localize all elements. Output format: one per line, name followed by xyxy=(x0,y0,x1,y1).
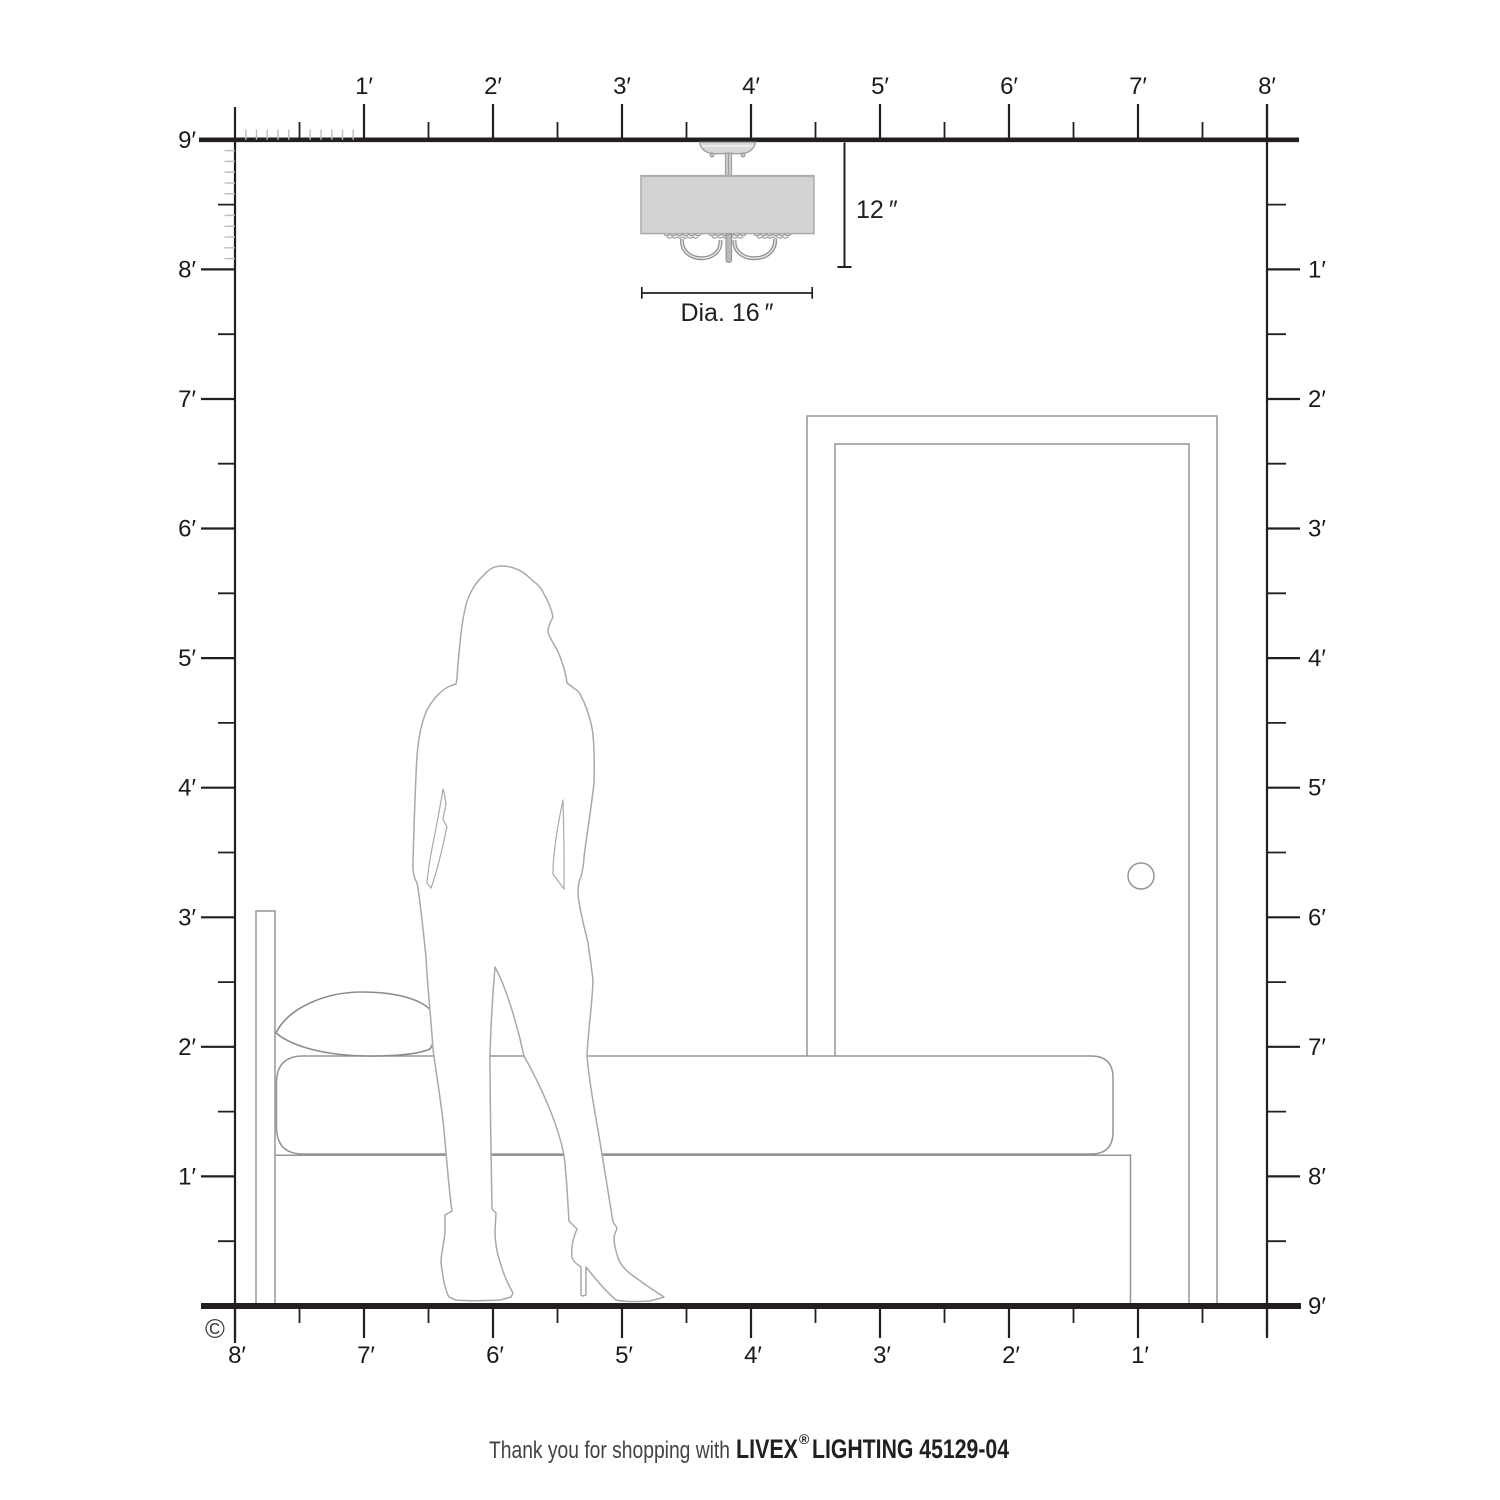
svg-text:3′: 3′ xyxy=(178,904,196,931)
svg-text:5′: 5′ xyxy=(871,73,889,100)
svg-text:8′: 8′ xyxy=(178,256,196,283)
svg-text:©: © xyxy=(205,1314,225,1344)
svg-text:6′: 6′ xyxy=(1000,73,1018,100)
svg-text:12 ″: 12 ″ xyxy=(856,196,898,224)
svg-text:4′: 4′ xyxy=(1308,645,1326,672)
svg-text:3′: 3′ xyxy=(1308,516,1326,543)
svg-text:2′: 2′ xyxy=(1308,386,1326,413)
svg-text:8′: 8′ xyxy=(1258,73,1276,100)
svg-text:4′: 4′ xyxy=(178,775,196,802)
svg-text:7′: 7′ xyxy=(178,386,196,413)
svg-text:3′: 3′ xyxy=(873,1342,891,1369)
svg-text:1′: 1′ xyxy=(1131,1342,1149,1369)
svg-text:LIGHTING 45129-04: LIGHTING 45129-04 xyxy=(812,1434,1009,1464)
svg-text:4′: 4′ xyxy=(742,73,760,100)
svg-text:2′: 2′ xyxy=(178,1034,196,1061)
svg-text:9′: 9′ xyxy=(178,127,196,154)
svg-text:3′: 3′ xyxy=(613,73,631,100)
svg-text:9′: 9′ xyxy=(1308,1293,1326,1320)
svg-text:®: ® xyxy=(799,1431,810,1447)
svg-text:1′: 1′ xyxy=(178,1163,196,1190)
svg-text:6′: 6′ xyxy=(486,1342,504,1369)
svg-text:Dia. 16 ″: Dia. 16 ″ xyxy=(680,299,773,327)
svg-text:7′: 7′ xyxy=(357,1342,375,1369)
svg-text:4′: 4′ xyxy=(744,1342,762,1369)
svg-text:1′: 1′ xyxy=(1308,256,1326,283)
svg-text:5′: 5′ xyxy=(615,1342,633,1369)
svg-text:5′: 5′ xyxy=(1308,775,1326,802)
svg-text:6′: 6′ xyxy=(1308,904,1326,931)
svg-text:2′: 2′ xyxy=(484,73,502,100)
svg-text:Thank you for shopping with: Thank you for shopping with xyxy=(489,1437,730,1464)
svg-text:5′: 5′ xyxy=(178,645,196,672)
svg-text:8′: 8′ xyxy=(1308,1163,1326,1190)
svg-text:6′: 6′ xyxy=(178,516,196,543)
svg-text:LIVEX: LIVEX xyxy=(736,1434,798,1464)
svg-text:7′: 7′ xyxy=(1308,1034,1326,1061)
svg-text:1′: 1′ xyxy=(355,73,373,100)
svg-text:7′: 7′ xyxy=(1129,73,1147,100)
svg-text:2′: 2′ xyxy=(1002,1342,1020,1369)
svg-text:8′: 8′ xyxy=(228,1342,246,1369)
